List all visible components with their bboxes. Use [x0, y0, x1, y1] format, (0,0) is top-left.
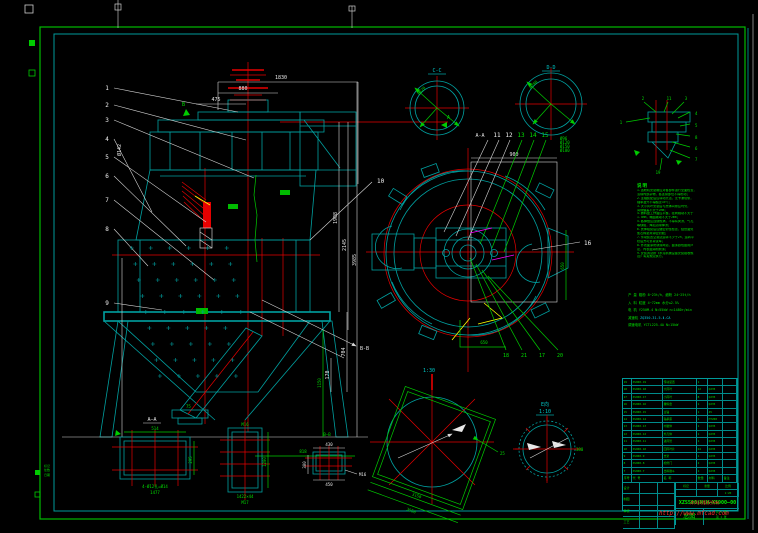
mini-balloon-6: 6	[695, 146, 698, 151]
base-ring-view: 1:30 3150 3550 25	[365, 368, 505, 529]
param-row: 减速机ZQ350-31.5-Ⅱ-CA	[628, 315, 738, 323]
base-dim-25: 25	[500, 451, 505, 456]
detail3-leader: M16	[359, 472, 367, 477]
bom-row: 10XS900-10回风叶片24Q235	[623, 446, 737, 453]
cad-drawing-canvas: 1830 880 475 Ø142 1908 2145 3985 704 170…	[0, 0, 758, 533]
bom-row: 17XS900-17小风叶8Q235	[623, 394, 737, 401]
bom-row: 16XS900-16撒料盘1Q235	[623, 401, 737, 408]
balloon-1: 1	[105, 85, 109, 92]
bom-row: 7XS900-7出料锥斗1Q235	[623, 468, 737, 475]
detail2-dim-right: 1200	[262, 457, 267, 467]
front-balloons: 1 2 3 4 5 6 7 8 9	[105, 85, 254, 310]
param-row: 电 机Y250M-4 N=55kW n=1480r/min	[628, 307, 738, 315]
detail-flange-2: M16 1200 1422×44 M17	[220, 420, 270, 505]
bom-row: 11XS900-11进风管1Q235	[623, 438, 737, 445]
dim-3985: 3985	[352, 254, 358, 266]
sig-design: 设计	[623, 483, 640, 493]
corner-mark	[25, 5, 33, 13]
balloon-7: 7	[105, 197, 109, 204]
bom-row: 14XS900-14轴承座1HT200	[623, 416, 737, 423]
sig-process: 工艺	[623, 517, 640, 527]
performance-params: 产 量粗粉 8~23t/h，细粉 24~25t/h入 料粒度 4~72mm 水分…	[628, 292, 738, 330]
balloon-16: 16	[584, 240, 592, 247]
balloon-4: 4	[105, 136, 109, 143]
scale-value: 1:20	[718, 490, 739, 496]
mini-balloon-8: 8	[695, 135, 698, 140]
e-view-scale: 1:10	[539, 409, 551, 415]
section-c-label: C-C	[432, 68, 441, 74]
param-row: 产 量粗粉 8~23t/h，细粉 24~25t/h	[628, 292, 738, 300]
base-dim-3550: 3550	[406, 506, 417, 514]
balloon-13: 13	[517, 132, 525, 139]
dim-75: 75	[186, 404, 191, 409]
sig-check: 审核	[623, 506, 640, 516]
bom-row: 8XS900-8检修门2Q235	[623, 460, 737, 467]
balloon-15: 15	[541, 132, 549, 139]
dim-704: 704	[341, 347, 347, 356]
cell-mark: 标记	[676, 483, 697, 489]
balloon-18: 18	[503, 353, 509, 359]
bom-table: 19XS900-19传动装置118XS900-18大风叶12Q23517XS90…	[623, 379, 737, 483]
section-d: D-D Ø780	[515, 65, 587, 140]
dim-1830: 1830	[275, 75, 287, 81]
detail2-dim-b2: M17	[241, 500, 249, 505]
inner-nozzle	[182, 182, 212, 248]
mini-balloon-4: 4	[695, 111, 698, 116]
title-block: 19XS900-19传动装置118XS900-18大风叶12Q23517XS90…	[622, 378, 738, 511]
edge-mark	[29, 40, 35, 46]
dim-880: 880	[238, 86, 247, 92]
detail1-dim-1477: 1477	[150, 490, 160, 495]
signature-grid: 设计 制图 审核 工艺	[623, 483, 676, 525]
balloon-3: 3	[105, 117, 109, 124]
param-row: 调速电机YCTL225-4A N=15kW	[628, 322, 738, 330]
detail3-dim-top: 430	[325, 442, 333, 447]
dim-2145: 2145	[342, 239, 348, 251]
detail-flange-1: A—A 514 295 4-Ø12孔=Ø14 1477	[112, 417, 198, 495]
bom-row: 15XS900-15主轴145	[623, 409, 737, 416]
mini-balloon-5: 5	[695, 123, 698, 128]
detail3-label: B—B	[323, 432, 331, 437]
bom-row: 序号代 号名 称数量材料备注	[623, 475, 737, 483]
balloon-21: 21	[521, 353, 527, 359]
balloon-12: 12	[505, 132, 513, 139]
detail1-dim-top: 514	[151, 426, 159, 431]
dim-475: 475	[211, 97, 220, 103]
bom-row: 18XS900-18大风叶12Q235	[623, 386, 737, 393]
bom-row: 19XS900-19传动装置1	[623, 379, 737, 386]
detail-flange-3: B—B 430 450 300 M16	[302, 432, 367, 487]
bom-row: 9XS900-9支架1Q235	[623, 453, 737, 460]
balloon-20: 20	[557, 353, 563, 359]
balloon-9: 9	[105, 300, 109, 307]
watermark-url: http://www.mfcad.com	[659, 511, 729, 517]
mini-balloon-1: 1	[620, 120, 623, 125]
mini-balloon-7: 7	[695, 157, 698, 162]
plan-view: 900 650 A-A 11 12 13 14 15 Ø96 Ø120 Ø150…	[366, 132, 592, 372]
cell-scale: 比例	[718, 483, 739, 489]
balloon-8: 8	[105, 226, 109, 233]
rev-mark-3: 日期	[44, 473, 50, 477]
detail1-dim-holes: 4-Ø12孔=Ø14	[142, 483, 168, 489]
balloon-6: 6	[105, 173, 109, 180]
detail3-dim-bottom: 450	[325, 482, 333, 487]
plan-dim-650-right: 650	[560, 262, 565, 270]
base-view-scale: 1:30	[423, 368, 435, 374]
detail1-label: A—A	[147, 417, 156, 423]
balloon-5: 5	[105, 154, 109, 161]
param-row: 入 料粒度 4~72mm 水分≤2.5%	[628, 300, 738, 308]
plan-dim-650-bottom: 650	[480, 340, 488, 345]
e-view: E向 1:10 380	[513, 401, 584, 483]
front-view: 1830 880 475 Ø142 1908 2145 3985 704 170…	[62, 62, 450, 456]
notes-lines: 1.选粉机安装前应对各部件进行全面检查， 清除内部杂物，各连接部位不得松动；2.…	[637, 189, 737, 259]
mini-balloon-11: 11	[667, 96, 672, 101]
mini-balloon-3: 3	[685, 96, 688, 101]
bom-row: 12XS900-12外壳体1Q235	[623, 431, 737, 438]
section-bb-label: B-B	[360, 346, 369, 352]
detail2-dim-b1: 1422×44	[237, 494, 254, 499]
dim-818: 818	[299, 449, 307, 454]
detail1-dim-right: 295	[188, 456, 193, 464]
plan-label-aa: A-A	[475, 133, 484, 139]
detail3-dim-left: 300	[302, 461, 307, 469]
note-line: 范》有关规定执行。	[637, 255, 737, 259]
e-view-dim: 380	[576, 447, 584, 452]
technical-notes: 说明 1.选粉机安装前应对各部件进行全面检查， 清除内部杂物，各连接部位不得松动…	[637, 183, 737, 259]
balloon-14: 14	[529, 132, 537, 139]
dim-1150: 1150	[317, 378, 322, 388]
plan-balloons: A-A 11 12 13 14 15 Ø96 Ø120 Ø150 Ø180 16	[444, 132, 592, 252]
balloon-2: 2	[105, 102, 109, 109]
dim-170: 170	[325, 370, 331, 379]
cell-weight: 重量	[697, 483, 718, 489]
sig-draw: 制图	[623, 494, 640, 504]
watermark-stamp: 沐风网版权所有	[690, 500, 719, 506]
balloon-17: 17	[539, 353, 545, 359]
section-c: C-C Ø620	[405, 68, 469, 140]
balloon-10: 10	[377, 178, 385, 185]
balloon-11: 11	[493, 132, 501, 139]
mini-schematic: 1 2 11 3 4 5 8 6 7 19	[620, 96, 698, 175]
plan-stack-3: Ø180	[560, 148, 570, 153]
volute-casing	[372, 164, 568, 340]
base-dim-3150: 3150	[411, 491, 422, 499]
mini-balloon-19: 19	[656, 170, 661, 175]
mini-balloon-2: 2	[642, 96, 645, 101]
section-b-label: B	[182, 102, 185, 108]
bom-row: 13XS900-13内锥体1Q235	[623, 423, 737, 430]
e-view-label: E向	[541, 401, 549, 408]
revision-marks: 标记 处数 日期	[44, 464, 50, 477]
